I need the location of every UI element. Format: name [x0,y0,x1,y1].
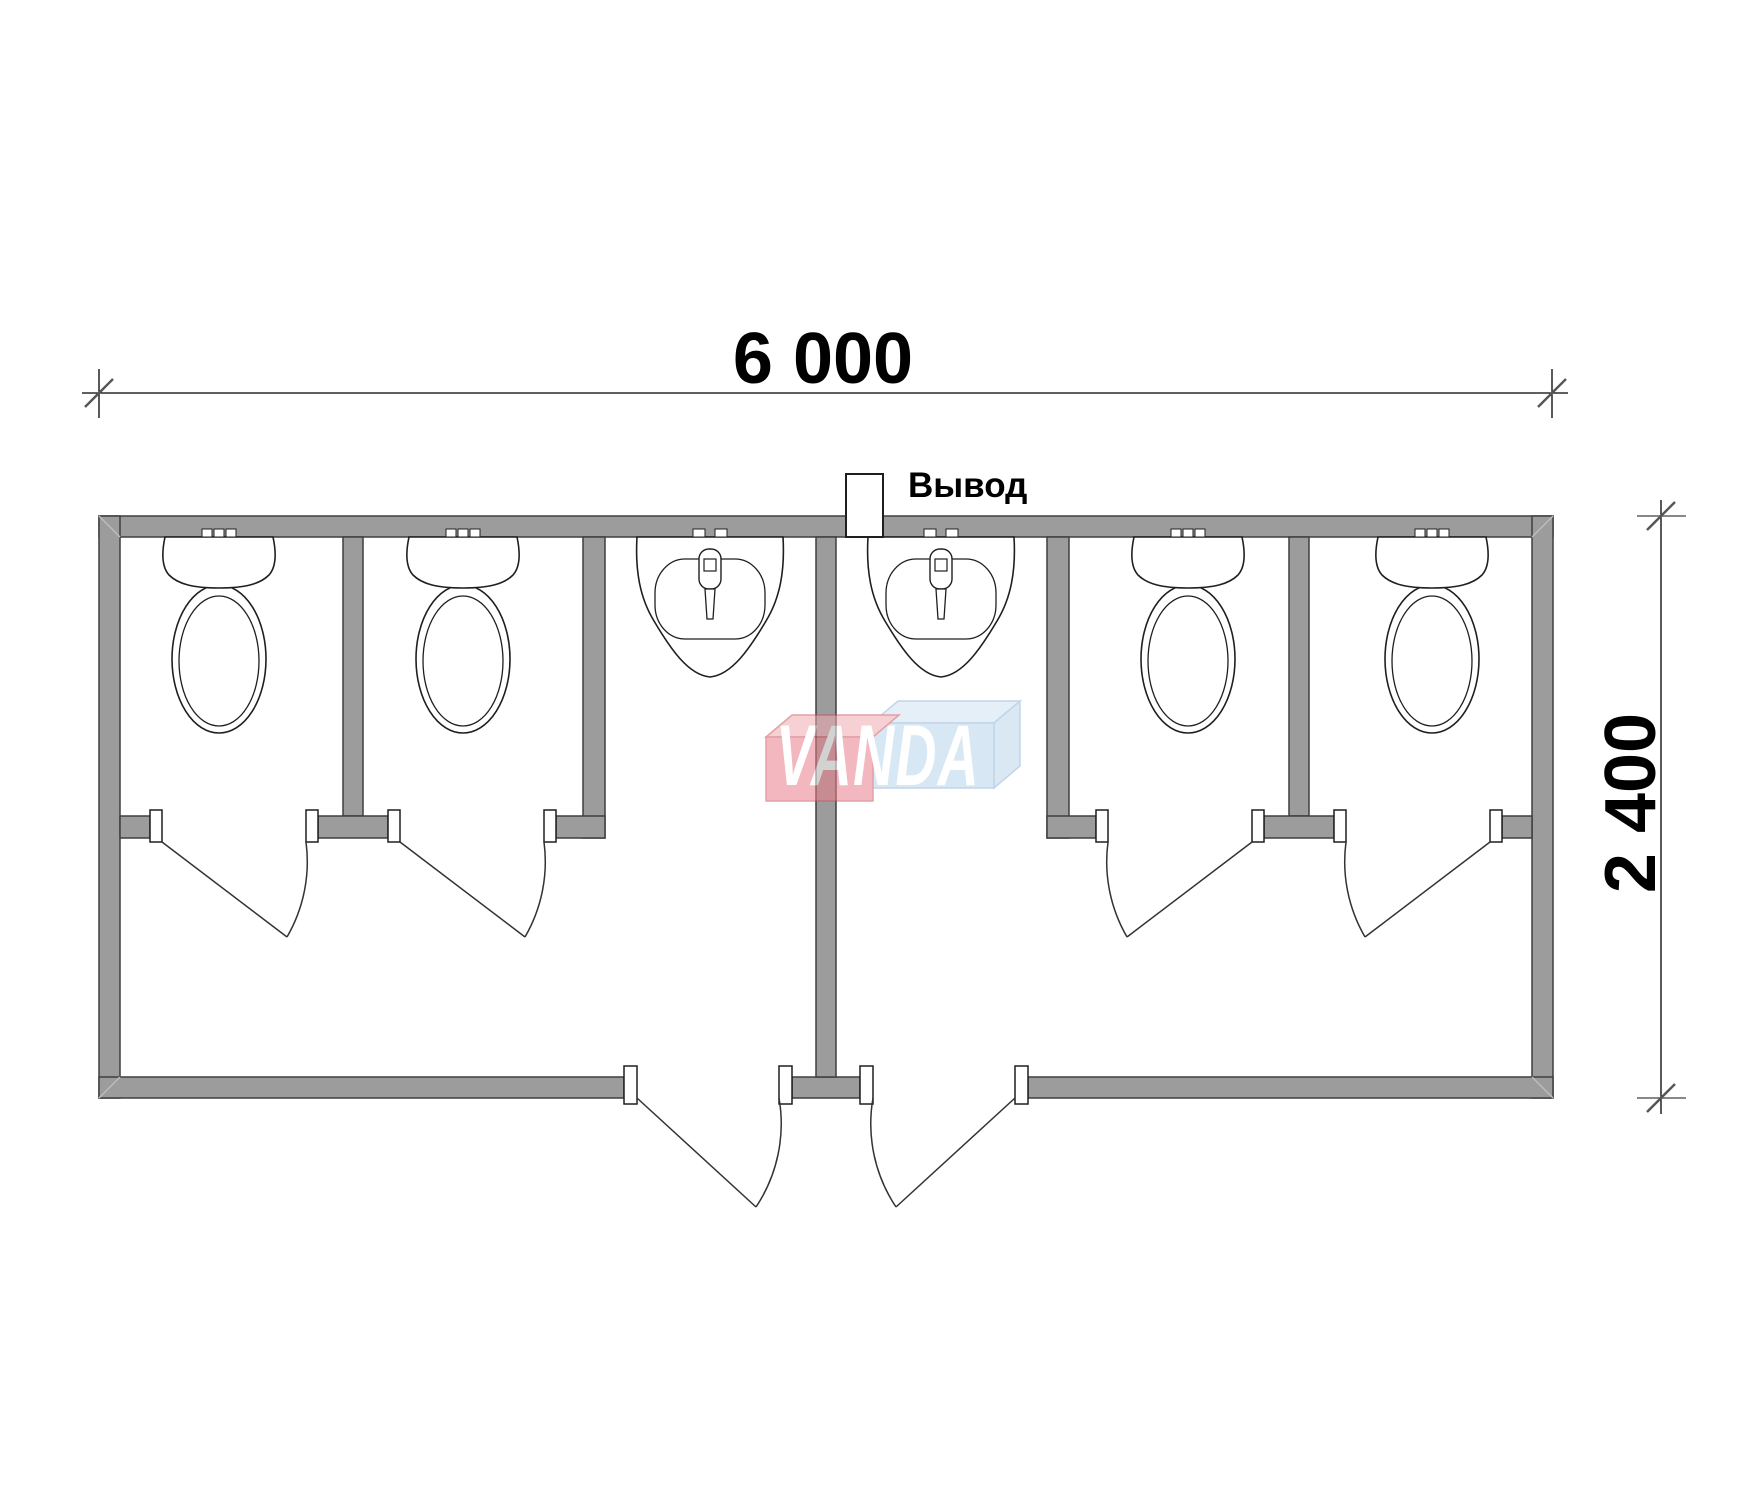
floor-plan-drawing: 6 000 2 400 [0,0,1763,1503]
walls [99,516,1553,1098]
wall-bottom-left [99,1077,624,1098]
wall-stub [318,816,388,838]
floor-plan-page: 6 000 2 400 [0,0,1763,1503]
watermark-logo: VANDA [766,701,1020,804]
wall-stall-partition-right [1289,537,1309,816]
wall-center-divider [816,537,836,1077]
wall-stub [1047,816,1096,838]
watermark-text: VANDA [776,708,980,804]
toilet-1 [163,529,275,733]
wall-bottom-right [1028,1077,1553,1098]
outlet-label: Вывод [908,466,1027,505]
wall-stall2-washroom1 [583,537,605,838]
wall-right [1532,516,1553,1098]
toilet-4 [1376,529,1488,733]
sink-2 [868,529,1015,677]
toilet-2 [407,529,519,733]
door-jamb [1096,810,1108,842]
entrance-door-left [637,1098,781,1207]
stall-door-4 [1345,842,1490,937]
outlet-box [846,474,883,537]
door-jamb [150,810,162,842]
wall-top [99,516,1553,537]
door-jamb [1252,810,1264,842]
wall-stub [556,816,605,838]
wall-stub [1502,816,1532,838]
entrance-door-right [871,1098,1015,1207]
door-jamb [1490,810,1502,842]
door-jamb [1334,810,1346,842]
dimension-width: 6 000 [82,319,1568,418]
door-jamb [860,1066,873,1104]
wall-washroom2-stall3 [1047,537,1069,838]
dimension-height: 2 400 [1591,500,1686,1114]
sink-1 [637,529,784,677]
stall-door-2 [400,842,545,937]
wall-bottom-center [792,1077,860,1098]
stall-door-3 [1107,842,1252,937]
door-jamb [388,810,400,842]
door-jamb [779,1066,792,1104]
door-jamb [544,810,556,842]
door-jamb [624,1066,637,1104]
door-jamb [1015,1066,1028,1104]
wall-stall-partition-left [343,537,363,816]
height-dimension-label: 2 400 [1591,713,1671,893]
wall-left [99,516,120,1098]
wall-stub [120,816,150,838]
stall-door-1 [162,842,307,937]
width-dimension-label: 6 000 [733,319,913,399]
door-jamb [306,810,318,842]
wall-stub [1264,816,1334,838]
toilet-3 [1132,529,1244,733]
